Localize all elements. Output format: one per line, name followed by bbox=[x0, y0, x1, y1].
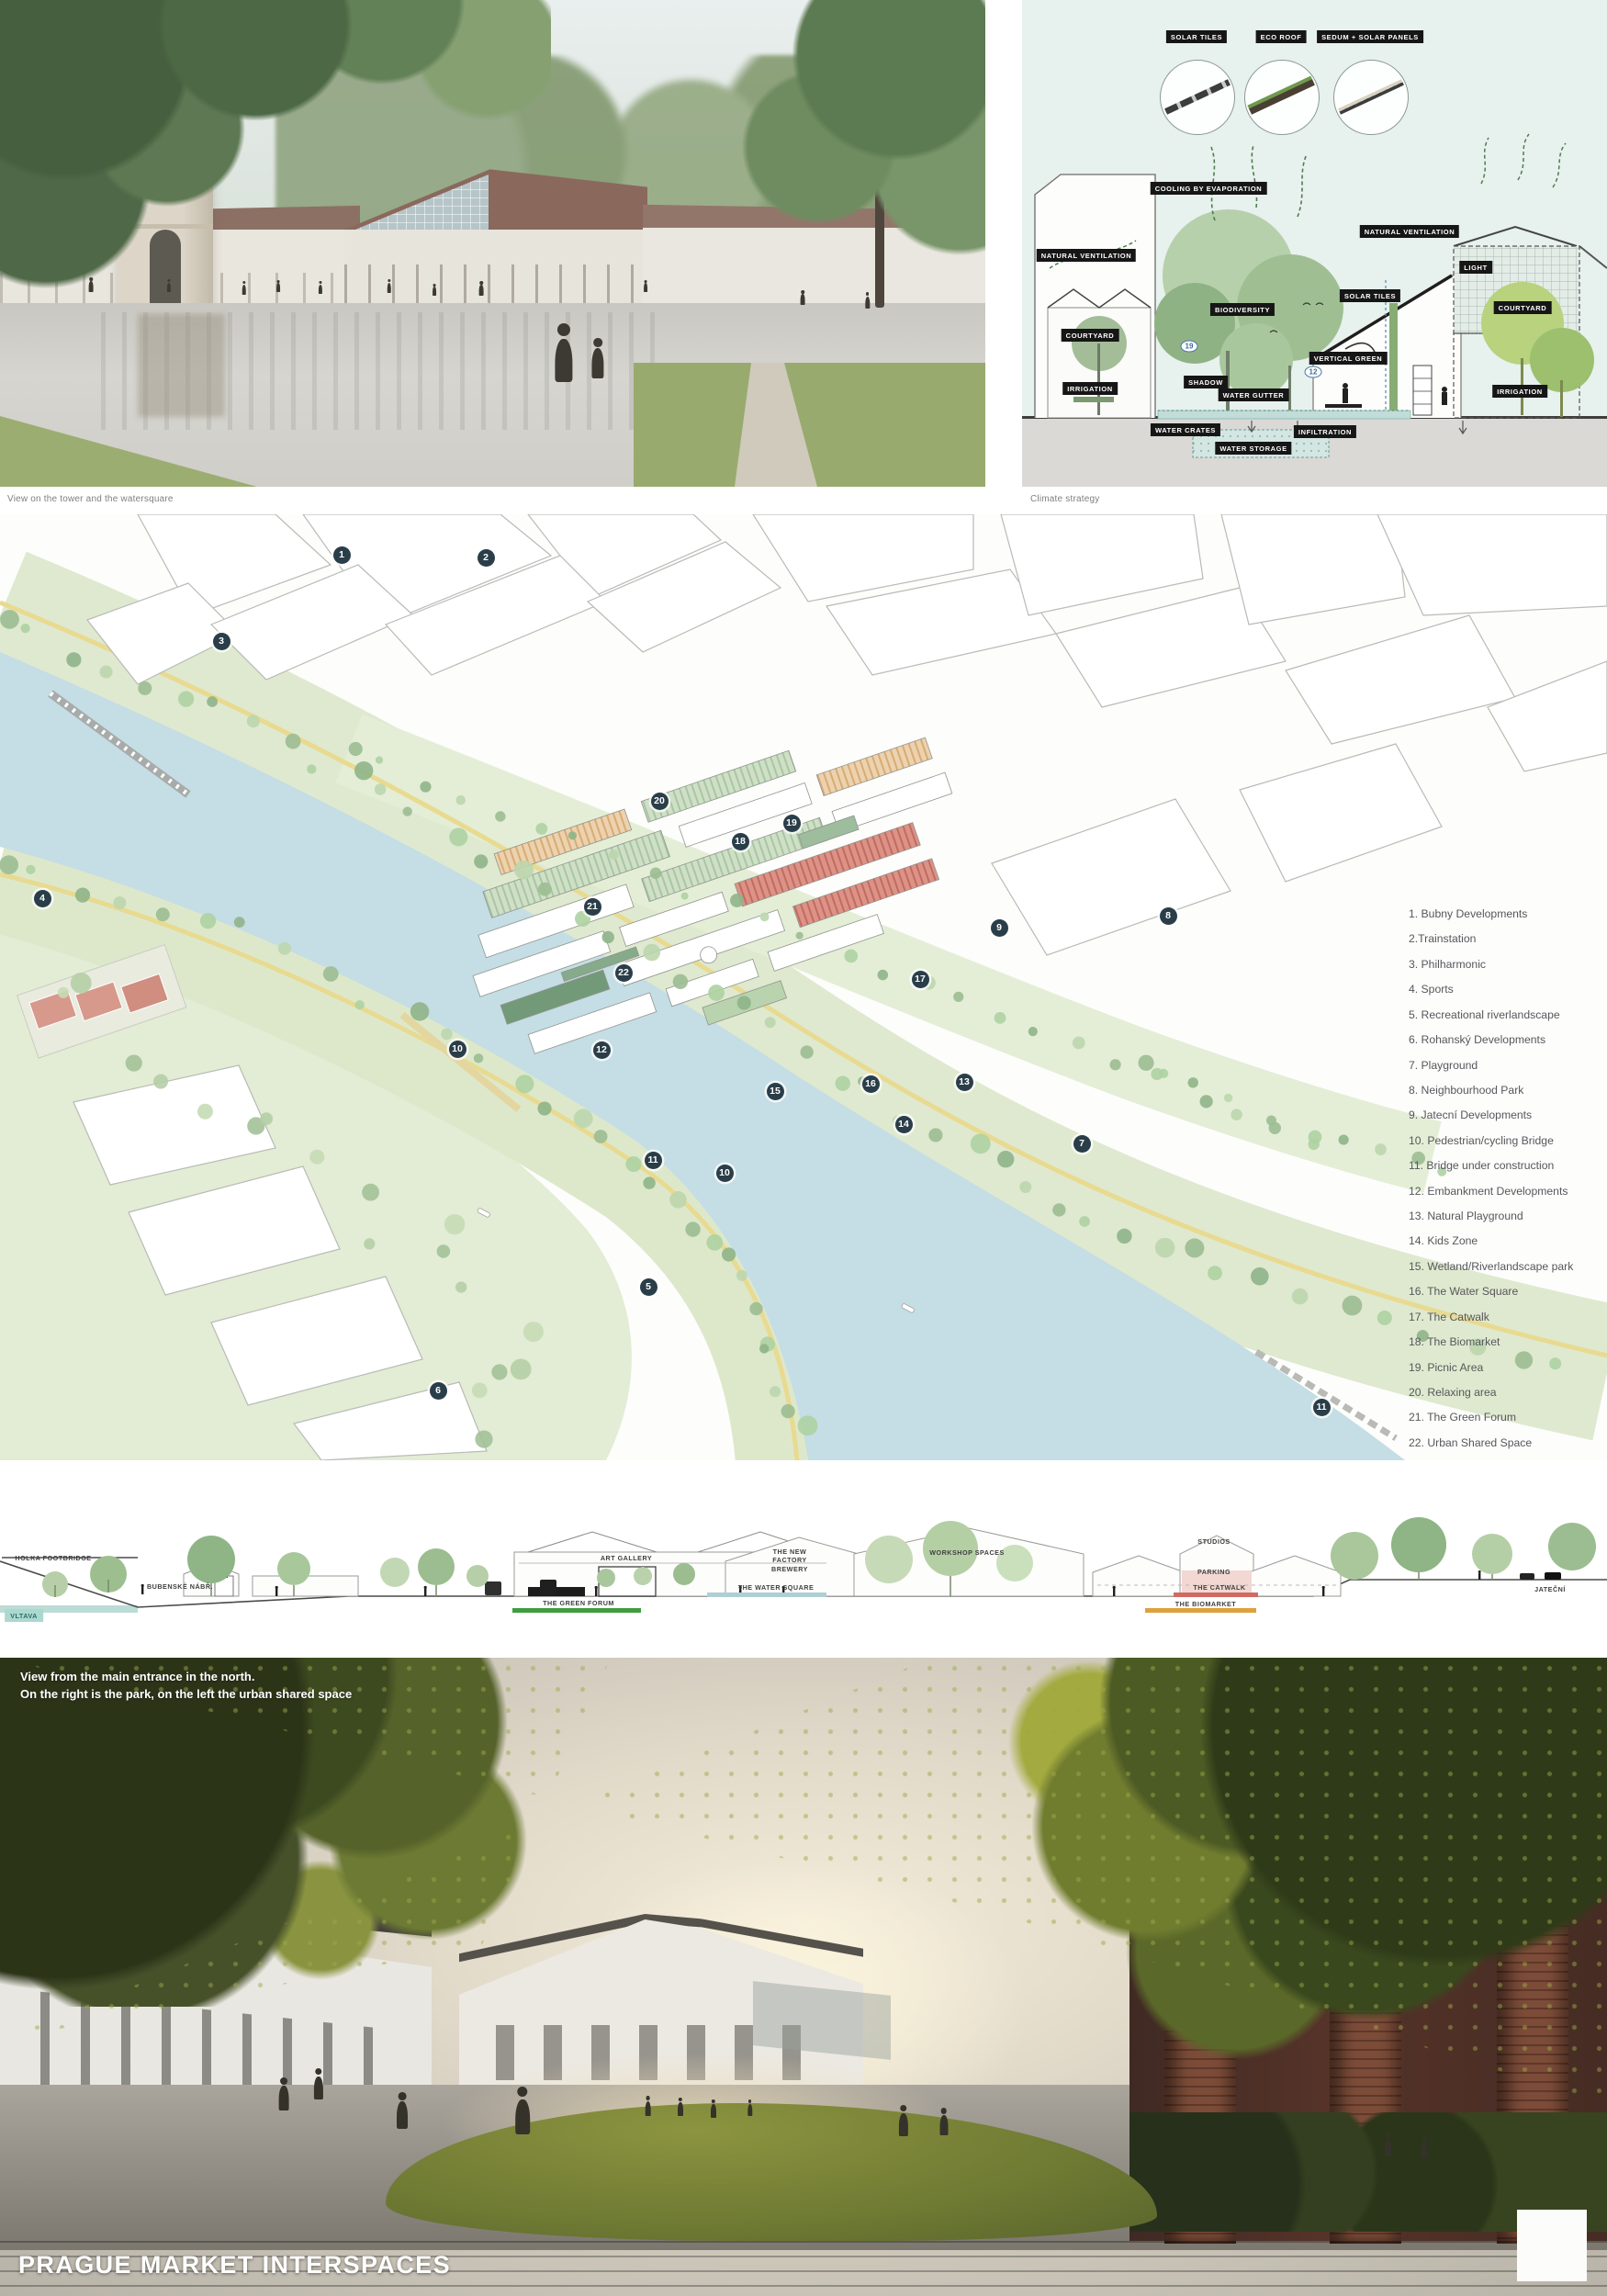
section-label: VLTAVA bbox=[5, 1609, 43, 1622]
legend-item: 3. Philharmonic bbox=[1409, 958, 1607, 971]
render-bottom-caption: View from the main entrance in the north… bbox=[20, 1669, 352, 1704]
person-silhouette bbox=[386, 279, 393, 293]
foreground-foliage-left bbox=[0, 1658, 643, 2007]
person-body bbox=[388, 283, 392, 293]
person-body bbox=[242, 285, 247, 295]
plan-marker-14: 14 bbox=[895, 1116, 913, 1133]
plan-marker-20: 20 bbox=[651, 793, 669, 810]
detail-circle-label: SOLAR TILES bbox=[1166, 30, 1227, 43]
caption-line-1: View from the main entrance in the north… bbox=[20, 1669, 352, 1686]
plan-marker-12: 12 bbox=[593, 1041, 611, 1059]
plan-marker-2: 2 bbox=[478, 549, 495, 567]
section-label: THE CATWALK bbox=[1193, 1583, 1245, 1592]
climate-label: COURTYARD bbox=[1494, 301, 1552, 314]
board-title: PRAGUE MARKET INTERSPACES bbox=[18, 2251, 451, 2279]
plan-marker-22: 22 bbox=[615, 964, 633, 982]
climate-label: NATURAL VENTILATION bbox=[1360, 225, 1459, 238]
person-head bbox=[242, 281, 245, 284]
tiles-detail-circle bbox=[1160, 60, 1235, 135]
person-silhouette bbox=[643, 2096, 653, 2116]
person-silhouette bbox=[87, 277, 95, 292]
person-silhouette bbox=[165, 279, 172, 292]
plan-marker-9: 9 bbox=[991, 919, 1008, 937]
plan-marker-16: 16 bbox=[862, 1075, 880, 1093]
person-body bbox=[1385, 2139, 1392, 2156]
legend-item: 19. Picnic Area bbox=[1409, 1361, 1607, 1374]
tree-canopy-top bbox=[129, 0, 551, 156]
person-head bbox=[479, 281, 483, 285]
person-silhouette bbox=[895, 2105, 911, 2136]
plan-marker-13: 13 bbox=[956, 1074, 973, 1091]
plan-marker-5: 5 bbox=[640, 1278, 657, 1296]
legend-item: 21. The Green Forum bbox=[1409, 1411, 1607, 1424]
person-body bbox=[747, 2104, 752, 2116]
plan-marker-7: 7 bbox=[1073, 1135, 1091, 1153]
plan-marker-1: 1 bbox=[333, 546, 351, 564]
person-body bbox=[555, 339, 572, 382]
legend-item: 12. Embankment Developments bbox=[1409, 1185, 1607, 1198]
climate-label: BIODIVERSITY bbox=[1210, 303, 1275, 316]
person-head bbox=[748, 2099, 752, 2103]
person-body bbox=[279, 2086, 289, 2110]
climate-label: IRRIGATION bbox=[1492, 385, 1547, 398]
person-body bbox=[711, 2104, 716, 2118]
person-body bbox=[479, 285, 484, 296]
person-head bbox=[388, 279, 390, 282]
legend-item: 9. Jatecní Developments bbox=[1409, 1109, 1607, 1121]
plan-marker-15: 15 bbox=[767, 1083, 784, 1100]
tree-canopy-right bbox=[725, 0, 985, 312]
person-body bbox=[678, 2102, 683, 2116]
foreground-foliage-right bbox=[927, 1658, 1607, 2099]
masterplan-drawing bbox=[0, 514, 1607, 1460]
tiles-sample bbox=[1164, 79, 1231, 114]
person-silhouette bbox=[310, 2068, 326, 2099]
legend-item: 11. Bridge under construction bbox=[1409, 1159, 1607, 1172]
detail-circle-label: SEDUM + SOLAR PANELS bbox=[1317, 30, 1423, 43]
person-silhouette bbox=[676, 2098, 685, 2116]
section-label: PARKING bbox=[1197, 1568, 1231, 1576]
plan-marker-19: 19 bbox=[783, 815, 801, 832]
person-body bbox=[1421, 2142, 1427, 2158]
person-silhouette bbox=[1419, 2136, 1430, 2158]
plan-marker-4: 4 bbox=[34, 890, 51, 907]
person-body bbox=[397, 2101, 408, 2129]
climate-caption: Climate strategy bbox=[1030, 494, 1099, 504]
person-head bbox=[557, 323, 570, 336]
legend-item: 6. Rohanský Developments bbox=[1409, 1033, 1607, 1046]
climate-ref-number: 12 bbox=[1305, 366, 1322, 378]
legend-item: 2.Trainstation bbox=[1409, 932, 1607, 945]
section-drawing bbox=[0, 1497, 1607, 1653]
person-head bbox=[315, 2068, 321, 2075]
biomarket-bar bbox=[1145, 1608, 1256, 1613]
section-label: THE NEW FACTORY BREWERY bbox=[759, 1548, 820, 1573]
section-label: THE BIOMARKET bbox=[1175, 1600, 1236, 1608]
climate-label: INFILTRATION bbox=[1294, 425, 1356, 438]
person-head bbox=[712, 2099, 715, 2103]
legend-item: 17. The Catwalk bbox=[1409, 1311, 1607, 1323]
person-head bbox=[1386, 2133, 1391, 2138]
person-silhouette bbox=[478, 281, 485, 296]
plan-marker-3: 3 bbox=[213, 633, 230, 650]
climate-label: WATER GUTTER bbox=[1219, 388, 1289, 401]
legend-item: 18. The Biomarket bbox=[1409, 1335, 1607, 1348]
person-head bbox=[89, 277, 93, 281]
person-head bbox=[167, 279, 170, 282]
legend-item: 13. Natural Playground bbox=[1409, 1210, 1607, 1222]
site-section: HOLKA FOOTBRIDGEVLTAVABUBENSKÉ NÁBŘ.ART … bbox=[0, 1497, 1607, 1653]
person-silhouette bbox=[549, 323, 579, 382]
climate-label: VERTICAL GREEN bbox=[1309, 352, 1388, 365]
person-body bbox=[166, 283, 170, 292]
legend-item: 7. Playground bbox=[1409, 1059, 1607, 1072]
climate-scene bbox=[1022, 0, 1607, 487]
legend-item: 4. Sports bbox=[1409, 983, 1607, 996]
person-silhouette bbox=[863, 292, 871, 309]
legend-item: 20. Relaxing area bbox=[1409, 1386, 1607, 1399]
section-label: THE GREEN FORUM bbox=[543, 1599, 614, 1607]
person-head bbox=[1422, 2136, 1426, 2141]
sedum-detail-circle bbox=[1333, 60, 1409, 135]
legend-item: 14. Kids Zone bbox=[1409, 1234, 1607, 1247]
plan-marker-21: 21 bbox=[584, 898, 601, 916]
presentation-board: View on the tower and the watersquare bbox=[0, 0, 1607, 2296]
plan-marker-10: 10 bbox=[449, 1041, 466, 1058]
legend-item: 10. Pedestrian/cycling Bridge bbox=[1409, 1134, 1607, 1147]
person-body bbox=[89, 281, 94, 292]
person-head bbox=[319, 281, 321, 284]
eco-detail-circle bbox=[1244, 60, 1320, 135]
climate-label: COOLING BY EVAPORATION bbox=[1151, 182, 1267, 195]
person-body bbox=[276, 283, 280, 292]
person-head bbox=[399, 2092, 407, 2100]
caption-line-2: On the right is the park, on the left th… bbox=[20, 1686, 352, 1704]
person-silhouette bbox=[275, 280, 282, 292]
person-head bbox=[866, 292, 870, 296]
plan-marker-11: 11 bbox=[1313, 1399, 1331, 1416]
person-silhouette bbox=[709, 2099, 718, 2118]
climate-label: IRRIGATION bbox=[1062, 382, 1118, 395]
climate-label: LIGHT bbox=[1459, 261, 1492, 274]
person-body bbox=[898, 2113, 907, 2136]
climate-diagram: SOLAR TILESECO ROOFSEDUM + SOLAR PANELS … bbox=[1022, 0, 1607, 487]
section-label: BUBENSKÉ NÁBŘ. bbox=[147, 1582, 213, 1591]
section-label: HOLKA FOOTBRIDGE bbox=[15, 1554, 91, 1562]
plan-marker-6: 6 bbox=[430, 1382, 447, 1400]
climate-label: WATER CRATES bbox=[1151, 423, 1220, 436]
person-silhouette bbox=[432, 284, 438, 296]
person-body bbox=[645, 2101, 651, 2116]
climate-label: SHADOW bbox=[1184, 376, 1228, 388]
person-silhouette bbox=[643, 280, 649, 292]
logo-placeholder bbox=[1517, 2210, 1587, 2281]
section-label: ART GALLERY bbox=[596, 1554, 657, 1562]
person-head bbox=[900, 2105, 906, 2111]
climate-label: COURTYARD bbox=[1062, 329, 1119, 342]
legend-item: 5. Recreational riverlandscape bbox=[1409, 1008, 1607, 1021]
climate-label: NATURAL VENTILATION bbox=[1037, 249, 1136, 262]
climate-label: SOLAR TILES bbox=[1340, 289, 1400, 302]
person-silhouette bbox=[393, 2092, 411, 2129]
person-silhouette bbox=[511, 2087, 534, 2134]
person-silhouette bbox=[937, 2108, 950, 2135]
plan-marker-8: 8 bbox=[1160, 907, 1177, 925]
person-head bbox=[646, 2096, 650, 2100]
plan-marker-17: 17 bbox=[912, 971, 929, 988]
legend-item: 1. Bubny Developments bbox=[1409, 907, 1607, 920]
person-body bbox=[644, 283, 647, 292]
legend-item: 15. Wetland/Riverlandscape park bbox=[1409, 1260, 1607, 1273]
masterplan: 123420191821982217101213151614711105611 … bbox=[0, 514, 1607, 1460]
person-body bbox=[433, 287, 436, 296]
person-body bbox=[939, 2115, 948, 2135]
person-head bbox=[280, 2077, 287, 2085]
water-square-bar bbox=[707, 1593, 826, 1597]
person-body bbox=[313, 2077, 322, 2099]
person-body bbox=[515, 2099, 530, 2134]
person-silhouette bbox=[275, 2077, 292, 2110]
person-body bbox=[801, 294, 805, 305]
person-body bbox=[318, 285, 321, 294]
render-top-view bbox=[0, 0, 985, 487]
render-bottom-view: View from the main entrance in the north… bbox=[0, 1658, 1607, 2296]
section-label: JATEČNÍ bbox=[1534, 1585, 1566, 1593]
person-silhouette bbox=[1382, 2133, 1394, 2156]
person-body bbox=[591, 348, 603, 378]
eco-sample bbox=[1249, 79, 1315, 114]
person-head bbox=[517, 2087, 527, 2097]
person-silhouette bbox=[241, 281, 248, 295]
person-silhouette bbox=[588, 338, 608, 378]
person-silhouette bbox=[317, 281, 323, 294]
big-hall-wall bbox=[344, 230, 647, 308]
climate-ref-number: 19 bbox=[1181, 341, 1198, 353]
green-forum-bar bbox=[512, 1608, 641, 1613]
masterplan-legend: 1. Bubny Developments2.Trainstation3. Ph… bbox=[1409, 907, 1607, 1461]
plan-marker-11: 11 bbox=[645, 1152, 662, 1169]
plan-marker-10: 10 bbox=[716, 1165, 734, 1182]
climate-label: WATER STORAGE bbox=[1215, 442, 1291, 455]
legend-item: 16. The Water Square bbox=[1409, 1285, 1607, 1298]
person-head bbox=[801, 290, 804, 294]
person-body bbox=[865, 297, 870, 309]
sedum-sample bbox=[1338, 79, 1404, 114]
render-top-caption: View on the tower and the watersquare bbox=[7, 494, 174, 504]
plan-marker-18: 18 bbox=[732, 833, 749, 850]
detail-circle-label: ECO ROOF bbox=[1256, 30, 1307, 43]
section-label: STUDIOS bbox=[1197, 1537, 1230, 1546]
section-label: WORKSHOP SPACES bbox=[929, 1548, 1005, 1557]
person-head bbox=[593, 338, 602, 347]
person-silhouette bbox=[799, 290, 806, 305]
person-silhouette bbox=[746, 2099, 754, 2116]
person-head bbox=[940, 2108, 947, 2114]
legend-item: 8. Neighbourhood Park bbox=[1409, 1084, 1607, 1097]
person-head bbox=[679, 2098, 682, 2101]
section-label: THE WATER SQUARE bbox=[738, 1583, 815, 1592]
legend-item: 22. Urban Shared Space bbox=[1409, 1436, 1607, 1449]
catwalk-bar bbox=[1174, 1593, 1258, 1597]
